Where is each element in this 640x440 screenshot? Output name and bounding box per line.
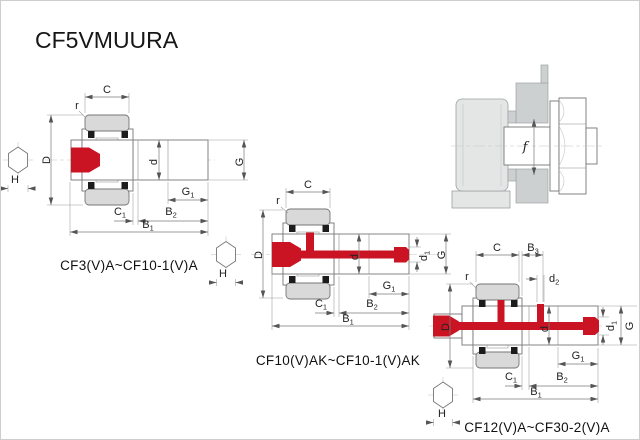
dim-label-b2: B2 <box>366 298 378 312</box>
drawing-canvas: CF5VMUURA C r D H <box>1 1 639 439</box>
hex-wrench-symbol: H <box>1 142 35 192</box>
housing-lip-bottom <box>508 169 516 181</box>
dim-label-d: d <box>539 326 551 332</box>
dim-label-b2: B2 <box>556 371 568 385</box>
dim-label-c1: C1 <box>114 206 126 220</box>
dim-label-c: C <box>304 179 312 191</box>
track-surface <box>452 191 510 208</box>
housing-lip-top <box>508 111 516 123</box>
grease-nipple-end <box>583 317 599 335</box>
dim-label-b3: B3 <box>527 242 539 256</box>
housing-wall-lower <box>516 169 548 203</box>
dim-label-r: r <box>465 271 469 283</box>
hex-wrench-symbol: H <box>209 237 243 287</box>
mounting-illustration: f <box>451 65 605 208</box>
dim-label-h: H <box>11 174 19 186</box>
housing-wall-upper <box>516 83 548 123</box>
outer-ring-top <box>476 284 519 300</box>
dim-label-b1: B1 <box>342 313 354 327</box>
dim-label-g: G <box>624 322 636 331</box>
outer-ring-bottom <box>85 189 129 205</box>
dim-label-d2: d2 <box>549 273 559 287</box>
dim-label-d: d <box>148 159 160 165</box>
grease-nipple-end <box>394 247 409 263</box>
diagram-cf3a: C r D H d G G1 C1 B2 <box>1 84 248 273</box>
dim-label-g1: G1 <box>572 350 585 364</box>
roller <box>456 99 508 191</box>
dim-label-g: G <box>234 158 246 167</box>
diagram-cf12a: C B3 d2 r D d d1 G G1 C1 B2 <box>426 242 637 435</box>
outer-ring-top <box>85 115 129 131</box>
dim-label-b2: B2 <box>165 206 177 220</box>
page-title: CF5VMUURA <box>35 27 179 53</box>
outer-ring-bottom <box>286 283 330 299</box>
grease-passage-axial <box>449 322 585 330</box>
dim-label-g1: G1 <box>383 280 396 294</box>
dim-label-d1: d1 <box>605 321 619 331</box>
dim-label-d1: d1 <box>418 251 432 261</box>
dim-label-d: d <box>349 254 361 260</box>
dim-label-h: H <box>219 268 227 280</box>
dim-label-g: G <box>436 251 448 260</box>
diagram-caption-cf10ak: CF10(V)AK~CF10-1(V)AK <box>256 353 420 368</box>
diagram-cf10ak: C r D H d d1 G G1 C1 <box>209 179 451 368</box>
dim-label-dd: D <box>41 156 53 164</box>
diagram-caption-cf3a: CF3(V)A~CF10-1(V)A <box>60 258 198 273</box>
dim-label-c1: C1 <box>505 371 517 385</box>
dim-label-r: r <box>276 195 280 207</box>
outer-ring-bottom <box>476 352 519 368</box>
dim-label-c: C <box>103 84 111 96</box>
housing-wall-top-step <box>541 65 548 83</box>
diagram-caption-cf12a: CF12(V)A~CF30-2(V)A <box>464 420 610 435</box>
dim-label-b1: B1 <box>530 386 542 400</box>
dim-label-h: H <box>438 408 446 420</box>
outer-ring-top <box>286 209 330 225</box>
dim-label-g1: G1 <box>182 186 195 200</box>
dim-label-c1: C1 <box>315 298 327 312</box>
dim-label-dd: D <box>253 251 265 259</box>
dim-label-c: C <box>493 242 501 254</box>
technical-drawing-page: CF5VMUURA C r D H <box>0 0 640 440</box>
dim-label-dd: D <box>440 323 452 331</box>
hex-wrench-symbol: H <box>426 377 460 426</box>
dim-label-r: r <box>75 100 79 112</box>
